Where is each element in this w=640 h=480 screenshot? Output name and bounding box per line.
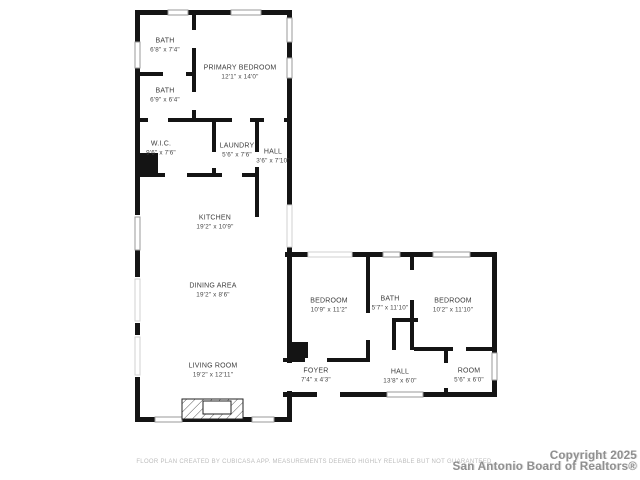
room-label-bath-upper: BATH 6'8" x 7'4" — [150, 38, 180, 55]
room-label-primary-bedroom: PRIMARY BEDROOM 12'1" x 14'0" — [204, 65, 277, 82]
room-name: W.I.C. — [146, 141, 176, 150]
room-name: BATH — [150, 38, 180, 47]
room-label-living-room: LIVING ROOM 19'2" x 12'11" — [189, 363, 238, 380]
room-dims: 5'6" x 7'6" — [220, 151, 255, 160]
room-name: BEDROOM — [433, 298, 473, 307]
room-dims: 7'4" x 4'3" — [301, 376, 331, 385]
copyright-line1: Copyright 2025 — [453, 451, 637, 462]
room-dims: 10'9" x 11'2" — [310, 306, 348, 315]
room-label-kitchen: KITCHEN 19'2" x 10'9" — [196, 215, 233, 232]
room-dims: 12'1" x 14'0" — [204, 73, 277, 82]
room-dims: 6'9" x 6'4" — [150, 96, 180, 105]
room-name: LIVING ROOM — [189, 363, 238, 372]
copyright-watermark: Copyright 2025 San Antonio Board of Real… — [453, 451, 637, 472]
room-name: BEDROOM — [310, 298, 348, 307]
copyright-line2: San Antonio Board of Realtors® — [453, 462, 637, 473]
room-dims: 5'7" x 11'10" — [372, 304, 409, 313]
room-dims: 13'8" x 6'0" — [383, 377, 416, 386]
room-label-wic: W.I.C. 9'6" x 7'6" — [146, 141, 176, 158]
room-dims: 9'6" x 7'6" — [146, 149, 176, 158]
room-label-hall-lower: HALL 13'8" x 6'0" — [383, 369, 416, 386]
disclaimer-text: FLOOR PLAN CREATED BY CUBICASA APP. MEAS… — [136, 459, 491, 465]
room-label-bath-lower: BATH 6'9" x 6'4" — [150, 88, 180, 105]
room-label-room: ROOM 5'6" x 6'0" — [454, 368, 484, 385]
room-name: FOYER — [301, 368, 331, 377]
room-name: DINING AREA — [189, 283, 236, 292]
room-label-foyer: FOYER 7'4" x 4'3" — [301, 368, 331, 385]
room-label-hall-upper: HALL 3'6" x 7'10" — [256, 149, 289, 166]
walls — [135, 10, 497, 422]
room-dims: 6'8" x 7'4" — [150, 46, 180, 55]
fireplace — [182, 399, 243, 419]
room-label-bath-right: BATH 5'7" x 11'10" — [372, 296, 409, 313]
room-name: KITCHEN — [196, 215, 233, 224]
room-name: HALL — [256, 149, 289, 158]
room-name: PRIMARY BEDROOM — [204, 65, 277, 74]
room-dims: 10'2" x 11'10" — [433, 306, 473, 315]
room-label-dining-area: DINING AREA 19'2" x 8'6" — [189, 283, 236, 300]
room-dims: 3'6" x 7'10" — [256, 157, 289, 166]
room-dims: 19'2" x 8'6" — [189, 291, 236, 300]
windows — [135, 10, 497, 422]
room-label-bedroom-right: BEDROOM 10'2" x 11'10" — [433, 298, 473, 315]
room-name: HALL — [383, 369, 416, 378]
room-dims: 5'6" x 6'0" — [454, 376, 484, 385]
floor-plan-drawing — [0, 0, 640, 480]
room-dims: 19'2" x 12'11" — [189, 371, 238, 380]
room-name: BATH — [150, 88, 180, 97]
floor-plan-page: BATH 6'8" x 7'4" PRIMARY BEDROOM 12'1" x… — [0, 0, 640, 480]
room-dims: 19'2" x 10'9" — [196, 223, 233, 232]
room-name: BATH — [372, 296, 409, 305]
room-label-bedroom-left: BEDROOM 10'9" x 11'2" — [310, 298, 348, 315]
room-label-laundry: LAUNDRY 5'6" x 7'6" — [220, 143, 255, 160]
room-name: ROOM — [454, 368, 484, 377]
room-name: LAUNDRY — [220, 143, 255, 152]
